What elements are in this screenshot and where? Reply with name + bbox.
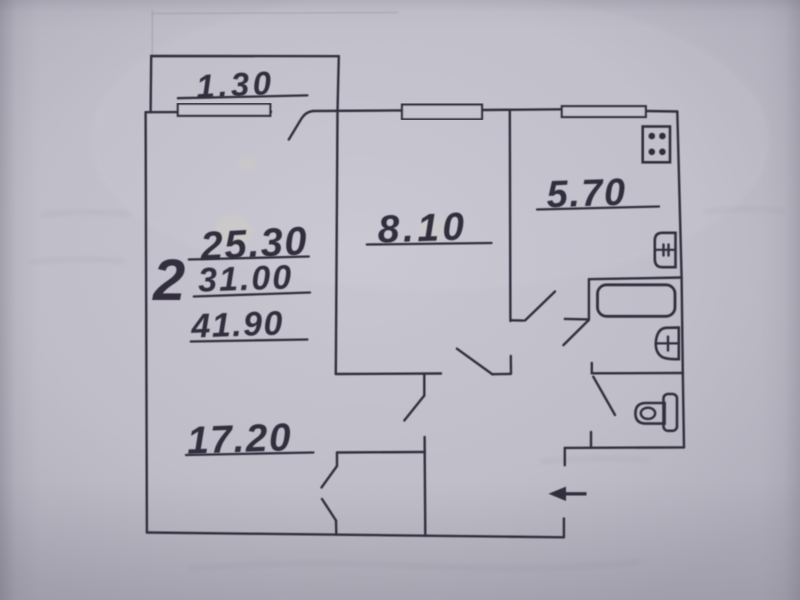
svg-text:41.90: 41.90: [190, 304, 285, 345]
svg-text:5.70: 5.70: [546, 172, 627, 217]
svg-text:8.10: 8.10: [377, 205, 468, 251]
svg-text:2: 2: [152, 248, 185, 313]
svg-text:17.20: 17.20: [186, 416, 293, 463]
svg-text:31.00: 31.00: [197, 258, 293, 299]
svg-text:1.30: 1.30: [195, 64, 275, 105]
